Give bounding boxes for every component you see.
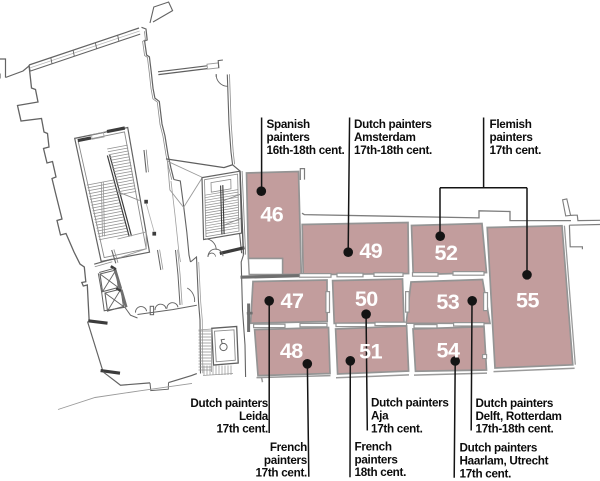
svg-text:Dutch painters: Dutch painters <box>476 397 554 410</box>
svg-text:46: 46 <box>260 203 283 227</box>
svg-text:painters: painters <box>490 131 534 144</box>
svg-text:17th cent.: 17th cent. <box>460 467 512 480</box>
svg-text:painters: painters <box>355 453 399 466</box>
svg-text:55: 55 <box>516 289 539 313</box>
svg-text:Dutch painters: Dutch painters <box>460 442 538 455</box>
svg-text:painters: painters <box>267 131 311 144</box>
svg-text:17th-18th cent.: 17th-18th cent. <box>354 144 432 157</box>
svg-text:17th-18th cent.: 17th-18th cent. <box>476 422 554 435</box>
svg-text:17th cent.: 17th cent. <box>255 467 307 480</box>
svg-text:17th cent.: 17th cent. <box>371 423 423 436</box>
svg-text:47: 47 <box>281 289 304 313</box>
svg-text:49: 49 <box>359 239 382 263</box>
svg-text:painters: painters <box>264 454 308 467</box>
svg-text:18th cent.: 18th cent. <box>355 466 407 479</box>
svg-text:Aja: Aja <box>371 410 389 423</box>
svg-text:French: French <box>355 441 392 454</box>
svg-text:17th cent.: 17th cent. <box>490 144 542 157</box>
svg-text:53: 53 <box>436 290 459 314</box>
svg-text:Flemish: Flemish <box>490 118 532 131</box>
svg-text:Amsterdam: Amsterdam <box>354 131 416 144</box>
svg-text:Leida: Leida <box>239 410 269 423</box>
svg-text:51: 51 <box>359 339 382 363</box>
svg-text:Delft, Rotterdam: Delft, Rotterdam <box>476 410 562 423</box>
svg-text:Haarlam, Utrecht: Haarlam, Utrecht <box>460 455 549 468</box>
svg-text:Spanish: Spanish <box>267 118 311 131</box>
svg-text:French: French <box>270 441 307 454</box>
svg-text:16th-18th cent.: 16th-18th cent. <box>267 144 345 157</box>
svg-text:Dutch painters: Dutch painters <box>354 118 432 131</box>
svg-text:54: 54 <box>437 339 460 363</box>
svg-text:17th cent.: 17th cent. <box>216 422 268 435</box>
svg-text:Dutch painters: Dutch painters <box>371 397 449 410</box>
svg-text:48: 48 <box>280 339 303 363</box>
svg-text:50: 50 <box>355 287 378 311</box>
svg-text:52: 52 <box>435 241 458 265</box>
svg-text:Dutch painters: Dutch painters <box>190 397 268 410</box>
